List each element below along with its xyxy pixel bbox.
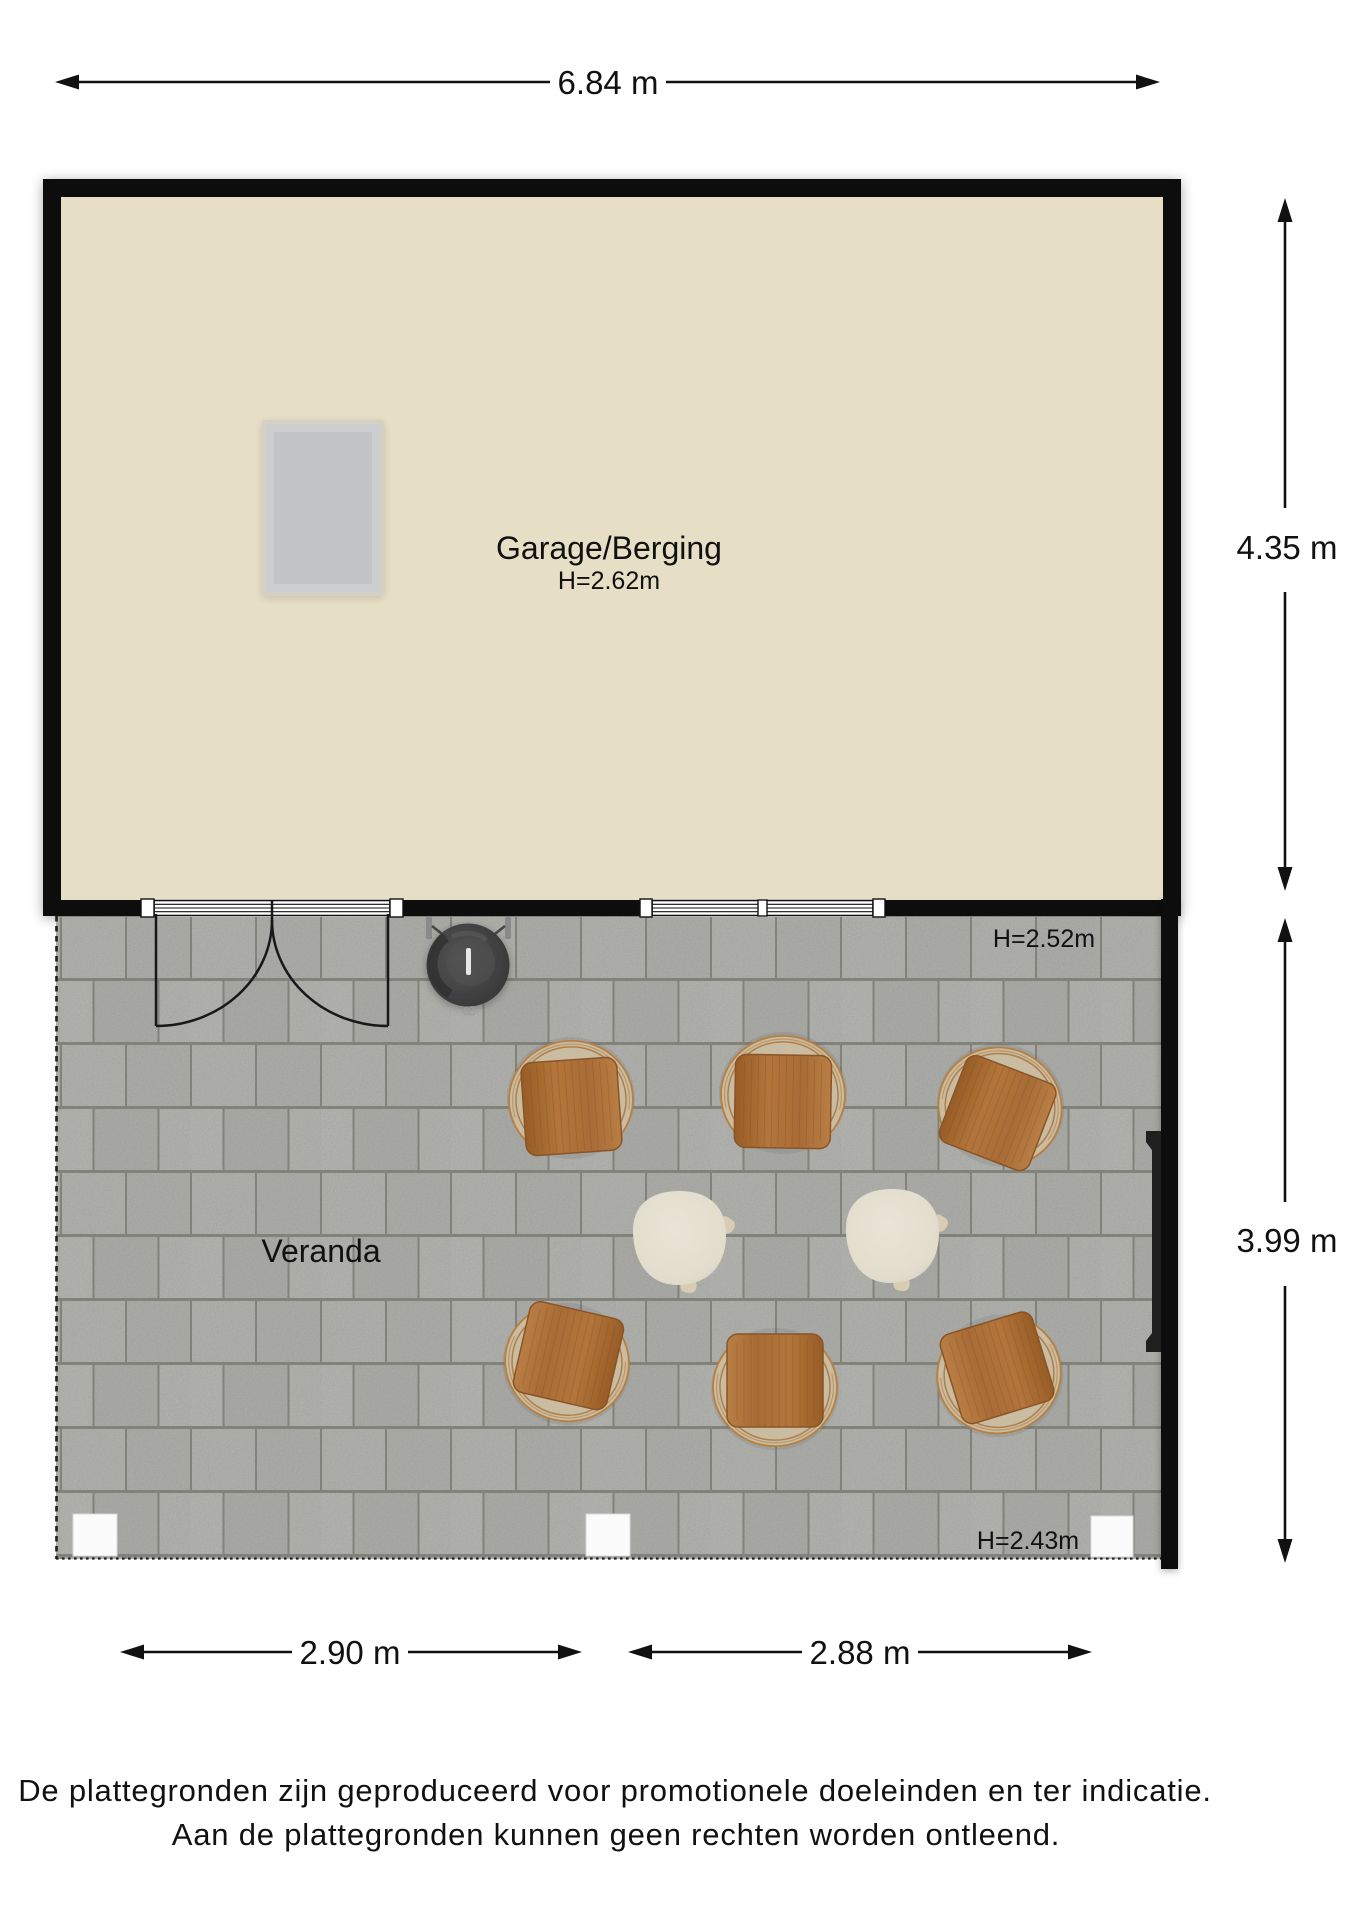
svg-text:3.99 m: 3.99 m: [1237, 1222, 1338, 1259]
svg-text:4.35 m: 4.35 m: [1237, 529, 1338, 566]
svg-text:De plattegronden zijn geproduc: De plattegronden zijn geproduceerd voor …: [18, 1773, 1212, 1808]
svg-text:Veranda: Veranda: [261, 1233, 380, 1269]
svg-text:H=2.62m: H=2.62m: [558, 567, 660, 595]
svg-text:Aan de plattegronden kunnen ge: Aan de plattegronden kunnen geen rechten…: [172, 1817, 1060, 1852]
svg-text:Garage/Berging: Garage/Berging: [496, 530, 722, 566]
svg-text:2.90 m: 2.90 m: [300, 1634, 401, 1671]
svg-text:2.88 m: 2.88 m: [810, 1634, 911, 1671]
svg-text:H=2.52m: H=2.52m: [993, 925, 1095, 953]
svg-text:B: B: [460, 1005, 479, 1016]
svg-text:H=2.43m: H=2.43m: [977, 1527, 1079, 1555]
svg-text:6.84 m: 6.84 m: [558, 64, 659, 101]
